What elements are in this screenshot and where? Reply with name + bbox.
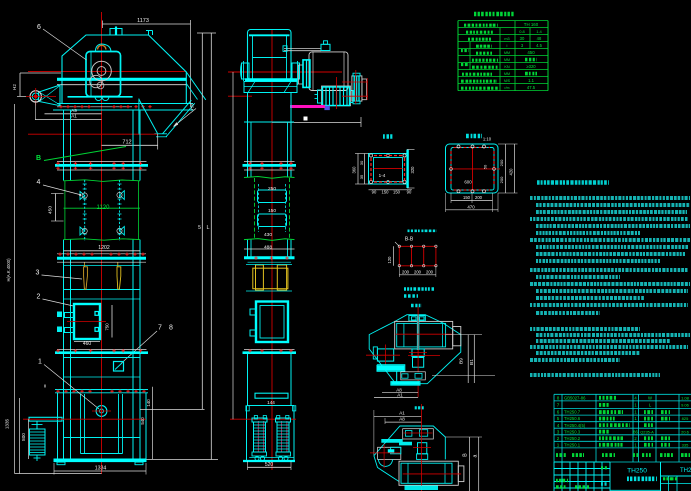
svg-text:9.06: 9.06 [681,403,690,408]
svg-text:H2: H2 [12,84,17,90]
svg-text:B-B: B-B [405,237,414,243]
svg-text:200: 200 [414,269,422,274]
svg-text:470: 470 [467,204,475,209]
svg-text:3: 3 [36,270,40,277]
svg-text:H(A.K.4000): H(A.K.4000) [6,258,11,282]
svg-text:1.4: 1.4 [536,29,542,34]
svg-text:150: 150 [382,189,390,194]
svg-text:1202: 1202 [98,245,110,251]
svg-text:MM: MM [504,58,510,62]
svg-text:MM: MM [504,72,510,76]
svg-text:7: 7 [557,403,560,408]
svg-text:4: 4 [557,423,560,428]
svg-text:150: 150 [268,208,276,214]
svg-text:B: B [36,155,41,162]
svg-text:B: B [463,453,469,457]
svg-text:m3: m3 [504,37,509,41]
svg-text:M/S: M/S [504,79,511,83]
svg-text:A9: A9 [71,108,77,114]
svg-text:TH2: TH2 [680,468,691,474]
svg-text:0.8: 0.8 [519,29,525,34]
svg-text:1.08: 1.08 [681,395,690,400]
svg-text:KN: KN [504,65,510,69]
svg-text:200: 200 [475,195,483,200]
svg-text:B9: B9 [459,358,465,364]
svg-text:150: 150 [393,189,401,194]
svg-text:TH250.7: TH250.7 [564,410,581,415]
svg-text:TH250.4(5): TH250.4(5) [564,423,586,428]
svg-text:420: 420 [509,168,514,176]
svg-text:200: 200 [402,269,410,274]
svg-text:1173: 1173 [137,18,149,24]
svg-text:450: 450 [527,50,535,55]
svg-text:r/m: r/m [505,86,510,90]
svg-text:1120: 1120 [97,205,111,211]
svg-text:90: 90 [372,189,377,194]
svg-text:Q235-A: Q235-A [640,429,654,434]
svg-text:II: II [44,384,47,389]
svg-text:250: 250 [268,186,276,192]
svg-text:200: 200 [499,176,504,183]
svg-text:47.5: 47.5 [527,85,536,90]
svg-text:MM: MM [504,51,510,55]
svg-text:825: 825 [682,416,689,421]
svg-text:TH250.1: TH250.1 [564,442,581,447]
svg-text:140: 140 [146,399,151,407]
svg-text:A1: A1 [397,393,403,398]
svg-text:360: 360 [351,166,356,174]
svg-text:712: 712 [122,140,131,146]
svg-text:430: 430 [264,232,272,238]
svg-text:4: 4 [37,179,41,186]
svg-text:TH250: TH250 [627,468,647,475]
svg-text:TH250.2: TH250.2 [564,436,581,441]
svg-text:520: 520 [265,462,274,468]
svg-text:86: 86 [633,429,638,434]
svg-text:6: 6 [37,24,41,31]
svg-text:A1: A1 [71,114,77,120]
svg-text:20.6: 20.6 [681,429,690,434]
svg-text:W: W [648,395,652,400]
svg-text:≥320: ≥320 [526,64,536,69]
svg-text:4.5: 4.5 [536,43,542,48]
svg-text:L: L [206,225,209,231]
svg-text:460: 460 [83,341,92,347]
svg-text:450: 450 [48,206,54,214]
svg-text:50: 50 [483,164,488,169]
svg-text:320: 320 [410,166,415,174]
svg-text:488: 488 [264,245,272,251]
svg-text:A8: A8 [399,417,405,422]
svg-text:90: 90 [407,189,412,194]
svg-text:48: 48 [537,36,542,41]
svg-text:335: 335 [682,442,689,447]
svg-text:A8: A8 [396,387,402,392]
svg-text:8: 8 [169,325,173,332]
svg-text:8: 8 [557,395,560,400]
svg-text:1334: 1334 [95,466,107,472]
svg-text:200: 200 [499,159,504,166]
svg-text:7: 7 [158,325,162,332]
svg-text:750: 750 [190,103,195,110]
svg-text:a: a [473,454,479,457]
svg-text:TH250.3: TH250.3 [564,429,581,434]
svg-text:1: 1 [38,359,42,366]
svg-text:TH250.6: TH250.6 [564,416,581,421]
svg-text:200: 200 [426,269,434,274]
svg-text:2: 2 [557,436,560,441]
svg-text:GB5027-86: GB5027-86 [564,395,586,400]
svg-text:600: 600 [464,180,472,185]
svg-text:TH 160: TH 160 [524,22,539,27]
svg-text:800: 800 [21,433,26,441]
svg-text:30: 30 [520,36,525,41]
svg-text:2: 2 [37,294,41,301]
svg-text:1.1: 1.1 [528,78,534,83]
svg-text:5: 5 [557,416,560,421]
svg-text:1335: 1335 [5,418,10,429]
svg-text:l: l [507,43,508,48]
svg-text:30: 30 [359,160,364,165]
svg-text:6: 6 [557,410,560,415]
svg-text:750: 750 [105,323,110,331]
svg-text:3: 3 [557,429,560,434]
svg-text:5: 5 [198,225,201,231]
svg-text:1-4: 1-4 [379,173,386,178]
svg-text:A1: A1 [399,411,405,416]
svg-text:150: 150 [463,195,471,200]
svg-text:144: 144 [267,400,275,405]
svg-text:120: 120 [387,256,392,264]
svg-text:540: 540 [140,417,145,425]
svg-text:1: 1 [557,442,560,447]
svg-text:35: 35 [359,174,364,179]
svg-text:1:10: 1:10 [483,137,492,142]
svg-text:B1: B1 [469,359,475,365]
